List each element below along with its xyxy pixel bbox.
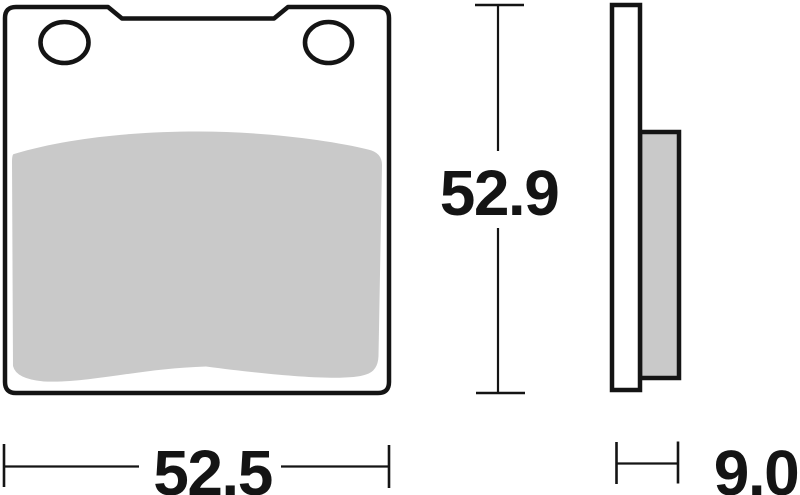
brake-pad-technical-drawing: 52.9 52.5 9.0 [0, 0, 800, 495]
drawing-svg [0, 0, 800, 495]
side-view [612, 5, 679, 390]
thickness-dimension [617, 442, 679, 485]
friction-material-side [640, 132, 679, 378]
friction-material-front [12, 132, 382, 382]
mounting-hole-right [305, 22, 352, 63]
mounting-hole-left [41, 22, 89, 63]
front-view [5, 7, 389, 393]
backing-plate-side [612, 5, 640, 390]
thickness-dimension-label: 9.0 [706, 441, 800, 495]
height-dimension-label: 52.9 [429, 161, 569, 225]
width-dimension-label: 52.5 [143, 441, 282, 495]
